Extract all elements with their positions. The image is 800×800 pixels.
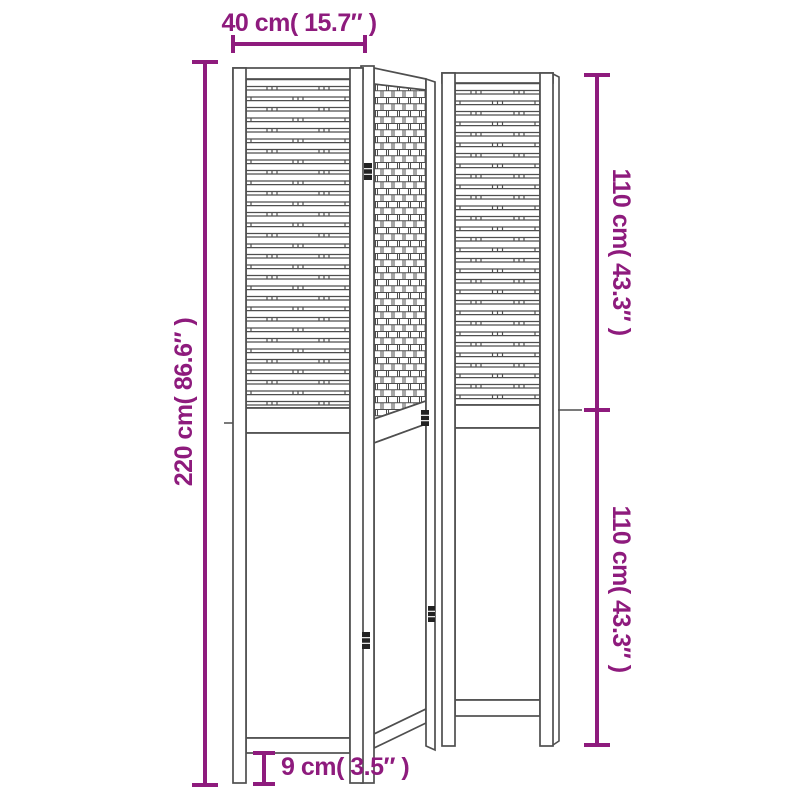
panel-left-middle-rail (246, 408, 350, 433)
width-label: 40 cm( 15.7″ ) (221, 9, 376, 37)
room-divider-dimension-diagram: 40 cm( 15.7″ ) 220 cm( 86.6″ ) 110 cm( 4… (0, 0, 800, 800)
panel-right-bottom-rail (455, 700, 540, 716)
lower-section-label: 110 cm( 43.3″ ) (607, 505, 635, 672)
total-height-label: 220 cm( 86.6″ ) (170, 318, 198, 487)
panel-right-right-stile (540, 73, 553, 746)
hinge-icon (421, 410, 429, 426)
dimension-line-foot (253, 753, 275, 784)
panel-left-left-stile (233, 68, 246, 783)
dimension-line-top (233, 35, 365, 53)
panel-right-lattice (455, 83, 540, 405)
foot-height-label: 9 cm( 3.5″ ) (281, 753, 409, 781)
hinge-icon (362, 632, 370, 649)
panel-right-lower-panel (455, 428, 540, 700)
diagram-canvas: 40 cm( 15.7″ ) 220 cm( 86.6″ ) 110 cm( 4… (0, 0, 800, 800)
dimension-width-top: 40 cm( 15.7″ ) (221, 9, 376, 53)
panel-right-left-stile (442, 73, 455, 746)
hinge-icon (364, 163, 372, 180)
panel-center-lattice (374, 84, 426, 419)
hinge-icon (428, 606, 435, 622)
panel-left-top-rail (233, 68, 363, 79)
dimension-line-right (584, 75, 610, 745)
dimension-foot-height: 9 cm( 3.5″ ) (253, 753, 409, 784)
panel-right (442, 73, 559, 746)
dimension-height-right: 110 cm( 43.3″ ) 110 cm( 43.3″ ) (584, 75, 635, 745)
upper-section-label: 110 cm( 43.3″ ) (607, 168, 635, 335)
panel-left-right-stile (350, 68, 363, 783)
panel-left-bottom-rail (246, 738, 350, 753)
dimension-height-left: 220 cm( 86.6″ ) (170, 62, 218, 785)
panel-right-middle-rail (455, 405, 540, 428)
room-divider-drawing (224, 66, 582, 783)
panel-left (233, 68, 363, 783)
panel-center-lower-panel (374, 424, 426, 734)
panel-left-lower-panel (246, 433, 350, 738)
panel-right-top-rail (442, 73, 553, 83)
panel-left-lattice (246, 79, 350, 408)
